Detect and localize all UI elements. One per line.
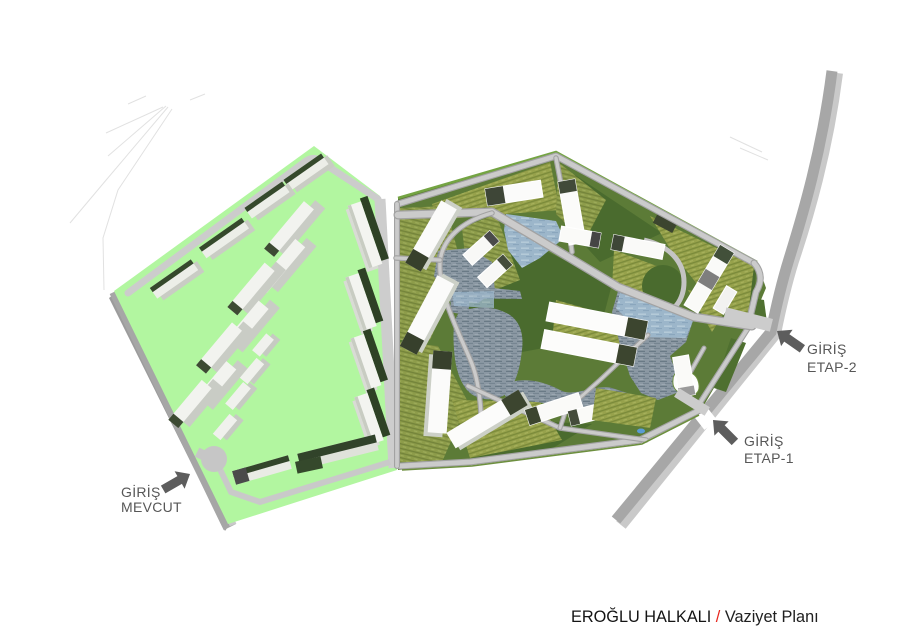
svg-text:MEVCUT: MEVCUT — [121, 499, 182, 515]
svg-text:GİRİŞ: GİRİŞ — [807, 340, 847, 357]
svg-text:ETAP-2: ETAP-2 — [807, 359, 857, 375]
svg-text:ETAP-1: ETAP-1 — [744, 450, 794, 466]
svg-text:GİRİŞ: GİRİŞ — [744, 432, 784, 449]
svg-text:EROĞLU HALKALI / Vaziyet Planı: EROĞLU HALKALI / Vaziyet Planı — [571, 607, 819, 626]
svg-text:GİRİŞ: GİRİŞ — [121, 483, 161, 500]
